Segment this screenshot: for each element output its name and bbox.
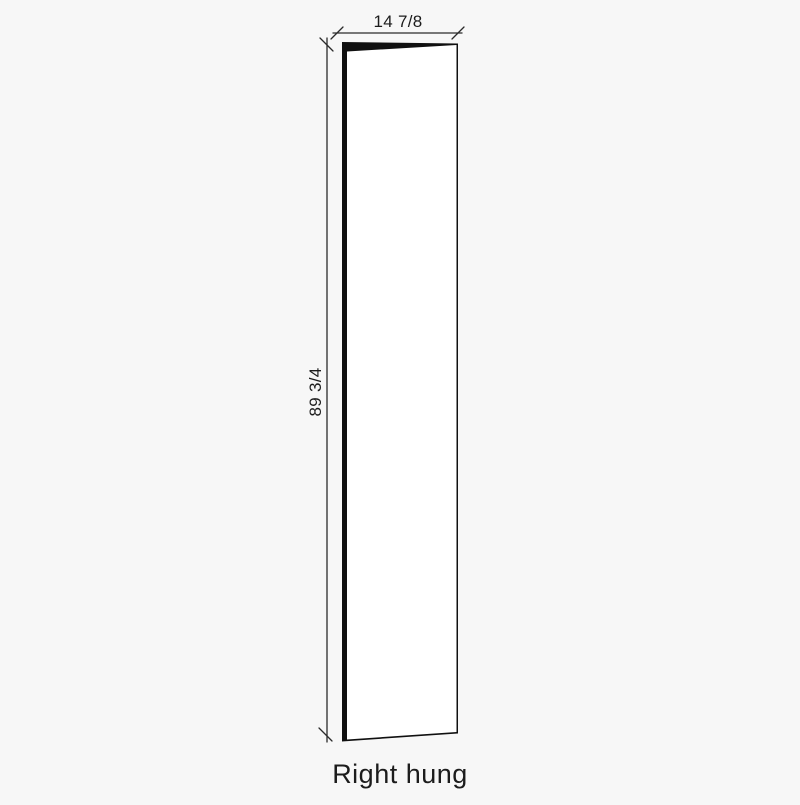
width-dimension: 14 7/8 bbox=[331, 12, 464, 39]
height-dimension-tick-bottom bbox=[319, 728, 332, 741]
door-face bbox=[347, 45, 457, 740]
height-dimension: 89 3/4 bbox=[306, 38, 333, 742]
door-diagram: 14 7/8 89 3/4 Right hung bbox=[0, 0, 800, 800]
width-dimension-label: 14 7/8 bbox=[373, 12, 422, 31]
diagram-caption: Right hung bbox=[332, 759, 468, 789]
door-panel bbox=[342, 42, 458, 742]
height-dimension-label: 89 3/4 bbox=[306, 367, 325, 416]
door-diagram-canvas: 14 7/8 89 3/4 Right hung bbox=[0, 0, 800, 800]
